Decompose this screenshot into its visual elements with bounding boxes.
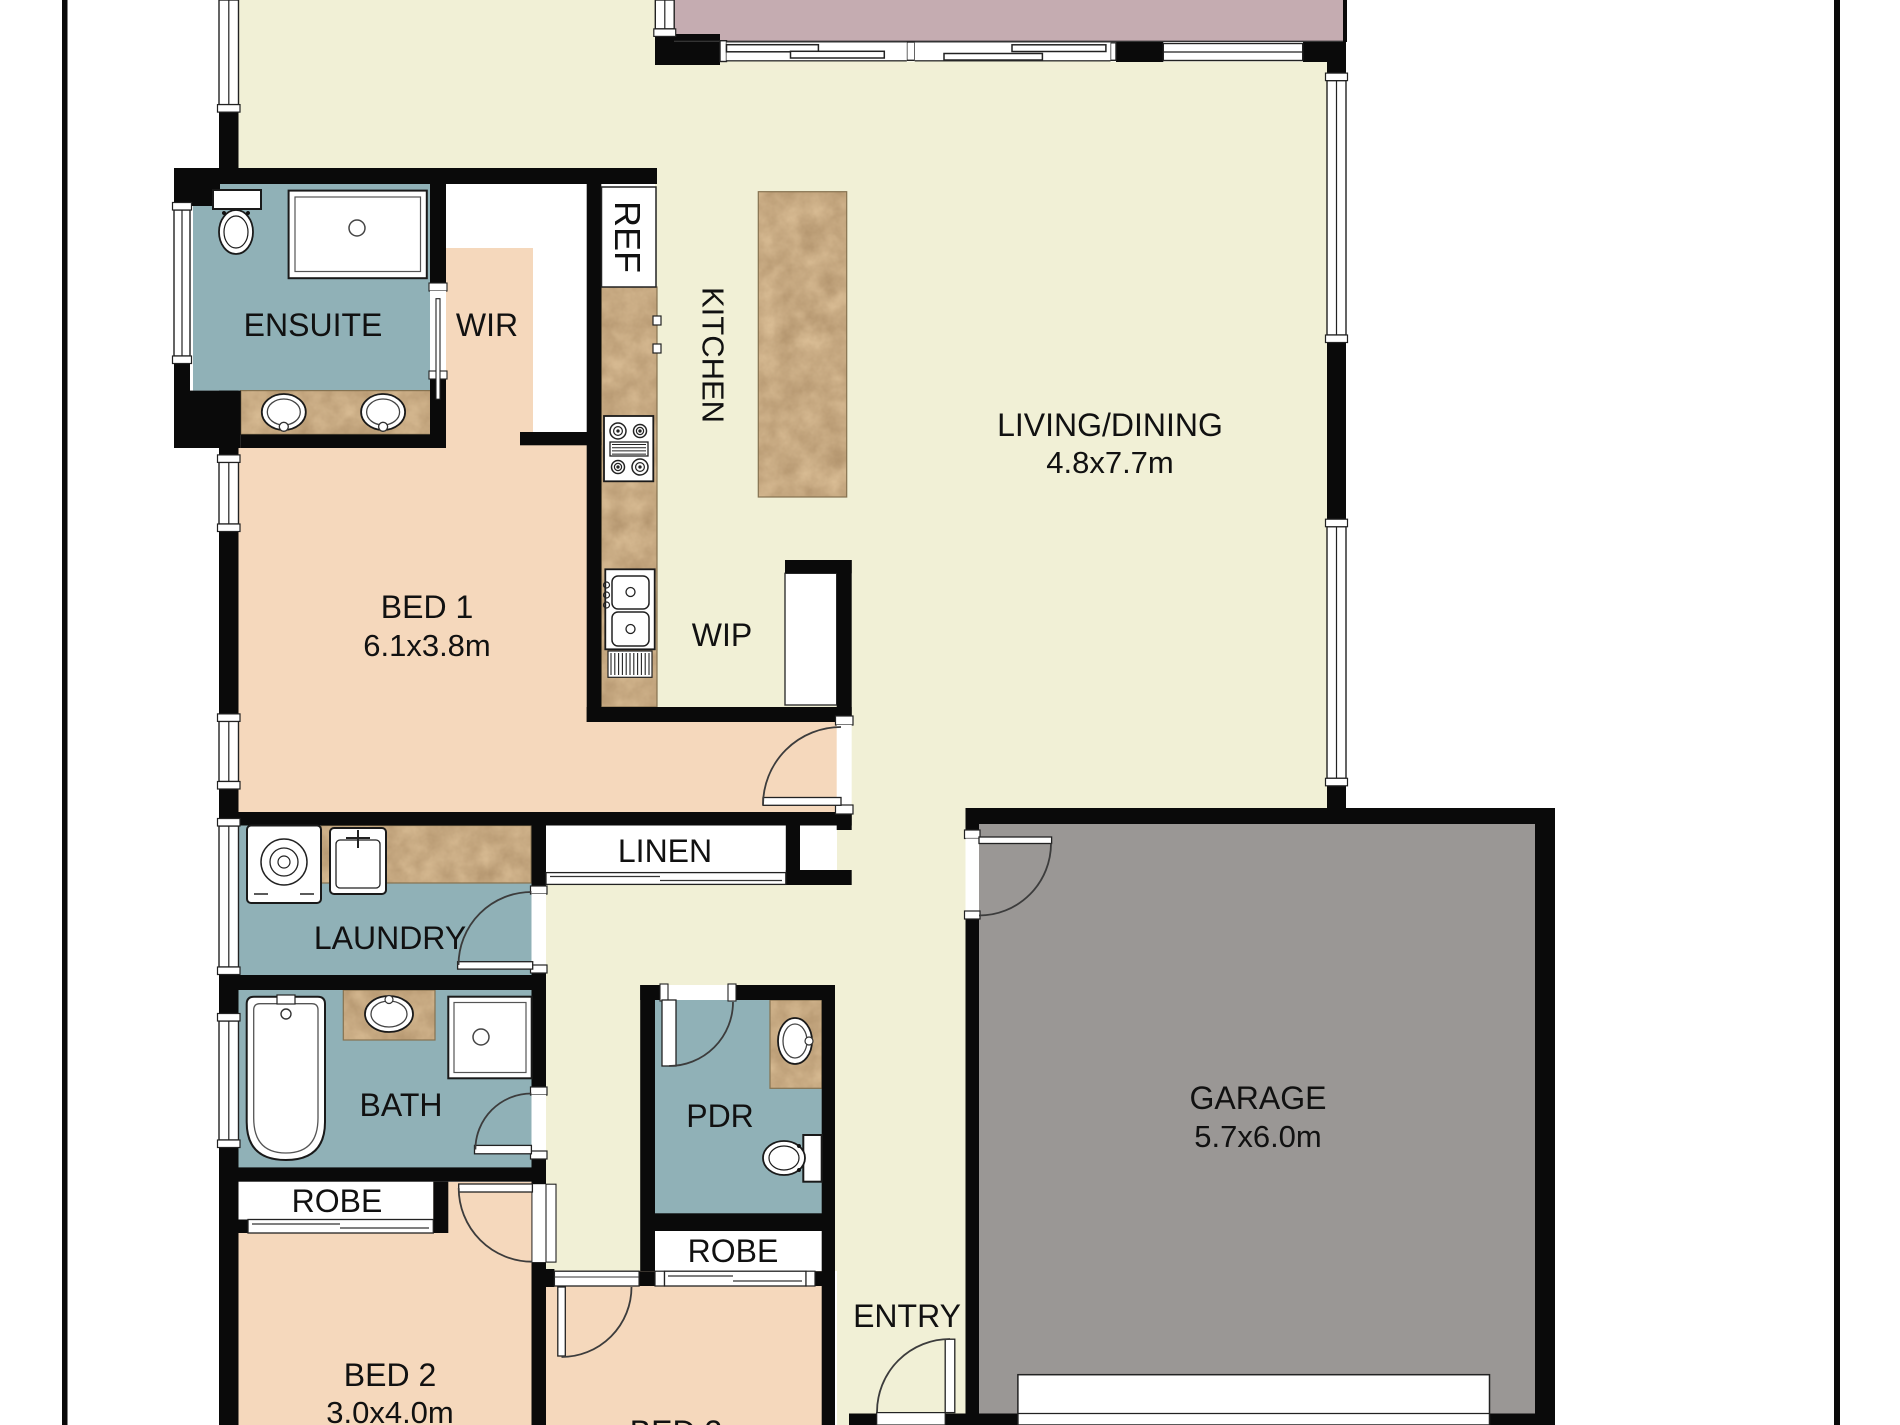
svg-text:WIR: WIR xyxy=(456,307,518,343)
svg-text:REF: REF xyxy=(607,201,648,273)
svg-text:ROBE: ROBE xyxy=(292,1183,383,1219)
svg-text:BATH: BATH xyxy=(360,1087,443,1123)
svg-text:GARAGE: GARAGE xyxy=(1190,1080,1327,1116)
svg-text:4.8x7.7m: 4.8x7.7m xyxy=(1046,445,1174,480)
svg-text:ENTRY: ENTRY xyxy=(853,1298,961,1334)
svg-text:LIVING/DINING: LIVING/DINING xyxy=(997,407,1223,443)
svg-text:BED 3: BED 3 xyxy=(630,1414,722,1425)
svg-text:LAUNDRY: LAUNDRY xyxy=(314,920,466,956)
svg-text:BED 2: BED 2 xyxy=(344,1357,436,1393)
svg-text:5.7x6.0m: 5.7x6.0m xyxy=(1194,1119,1322,1154)
svg-text:ENSUITE: ENSUITE xyxy=(244,307,383,343)
svg-text:PDR: PDR xyxy=(686,1098,754,1134)
svg-text:LINEN: LINEN xyxy=(618,833,712,869)
svg-text:6.1x3.8m: 6.1x3.8m xyxy=(363,628,491,663)
svg-text:KITCHEN: KITCHEN xyxy=(696,287,731,423)
svg-text:BED 1: BED 1 xyxy=(381,589,473,625)
svg-text:WIP: WIP xyxy=(692,617,752,653)
svg-text:3.0x4.0m: 3.0x4.0m xyxy=(326,1395,454,1425)
svg-text:ROBE: ROBE xyxy=(688,1233,779,1269)
